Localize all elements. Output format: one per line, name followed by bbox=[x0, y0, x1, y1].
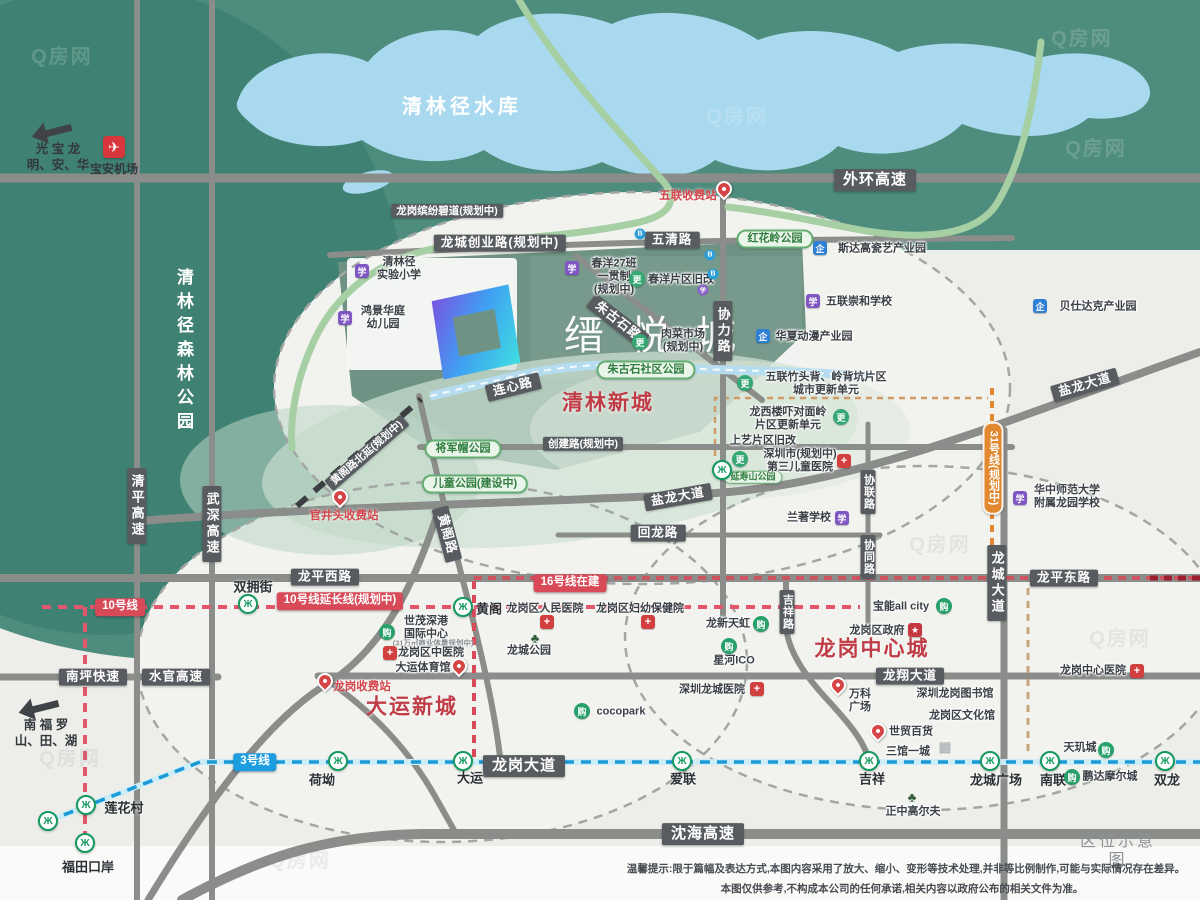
watermark: Q房网 bbox=[39, 748, 101, 772]
road-label-xietong-road: 协同路 bbox=[861, 535, 876, 579]
road-label-huilong-road: 回龙路 bbox=[631, 525, 686, 542]
school-icon-ccnu-longyuan: 学 bbox=[1013, 491, 1027, 505]
hospital-icon-tcm: + bbox=[383, 646, 397, 660]
road-label-longgang-avenue: 龙岗大道 bbox=[483, 755, 565, 777]
area-longgang-central: 龙岗中心城 bbox=[815, 638, 930, 663]
station-dayun: 大运 bbox=[457, 770, 483, 785]
poi-beishidake-industrial-park: 贝仕达克产业园 bbox=[1060, 301, 1137, 314]
metro-icon-longcheng-square: Ж bbox=[980, 751, 1000, 771]
poi-ccnu-longyuan-school: 华中师范大学 附属龙园学校 bbox=[1034, 484, 1100, 510]
station-longcheng-square: 龙城广场 bbox=[970, 772, 1022, 787]
metro-icon-jixiang: Ж bbox=[859, 751, 879, 771]
road-label-shuiguan-expressway: 水官高速 bbox=[142, 669, 210, 686]
metro-icon-huangge: Ж bbox=[453, 597, 473, 617]
poi-longxi-louxia-renewal: 龙西楼吓对面岭 片区更新单元 bbox=[750, 406, 827, 432]
mall-icon-xinghe-ico: 购 bbox=[721, 638, 737, 654]
station-jixiang: 吉祥 bbox=[859, 771, 885, 786]
road-label-qingping-expressway: 清平高速 bbox=[127, 468, 146, 544]
metro-icon-ailian: Ж bbox=[672, 751, 692, 771]
poi-pengda-mall: 鹏达摩尔城 bbox=[1083, 771, 1138, 784]
poi-xinghe-ico: 星河ICO bbox=[713, 655, 755, 668]
disclaimer-line1: 温馨提示:限于篇幅及表达方式,本图内容采用了放大、缩小、变形等技术处理,并非等比… bbox=[627, 863, 1185, 875]
area-dayun-newtown: 大运新城 bbox=[366, 696, 458, 721]
poi-third-children-hospital: 深圳市(规划中) 第三儿童医院 bbox=[763, 448, 836, 474]
mall-icon-shimao-center: 购 bbox=[379, 624, 395, 640]
park-zhugushi-community: 朱古石社区公园 bbox=[597, 361, 696, 380]
poi-dayun-gymnasium: 大运体育馆 bbox=[396, 662, 451, 675]
school-icon-lanzhu: 学 bbox=[835, 511, 849, 525]
poi-wulian-zhutoubei-renewal: 五联竹头背、岭背坑片区 城市更新单元 bbox=[766, 371, 887, 397]
poi-shimao-shengang-center: 世茂深港 国际中心 bbox=[404, 615, 448, 641]
sign-baoan-airport: 宝安机场 bbox=[90, 162, 138, 178]
station-ailian: 爱联 bbox=[670, 771, 696, 786]
tree-icon-longcheng-park: ♣ bbox=[531, 631, 540, 646]
metro-icon-dayun: Ж bbox=[453, 751, 473, 771]
poi-sidagao-ceramic-park: 斯达高瓷艺产业园 bbox=[838, 243, 926, 256]
school-icon-hongjing-kindergarten: 学 bbox=[338, 311, 352, 325]
arrow-icon-northwest bbox=[42, 124, 73, 138]
poi-zhengzhong-golf: 正中高尔夫 bbox=[886, 806, 941, 819]
renew-icon-zhutoubei: 更 bbox=[737, 375, 753, 391]
poi-shenzhen-longcheng-hospital: 深圳龙城医院 bbox=[679, 684, 745, 697]
road-label-yanlong-avenue-west: 盐龙大道 bbox=[643, 483, 713, 511]
park-children: 儿童公园(建设中) bbox=[422, 475, 528, 494]
metro-line10-badge: 10号线 bbox=[95, 598, 145, 616]
metro-line31-badge: 31号线(规划中) bbox=[983, 422, 1004, 515]
airport-icon: ✈ bbox=[103, 136, 125, 158]
location-map: 缙悦城 清林新城大运新城龙岗中心城清林径水库清林径森林公园外环高速五清路龙城创业… bbox=[0, 0, 1200, 900]
school-icon-wulian-chonghe: 学 bbox=[806, 294, 820, 308]
metro-line10-extension-badge: 10号线延长线(规划中) bbox=[277, 592, 403, 610]
metro-icon-heao: Ж bbox=[328, 751, 348, 771]
poi-longgang-government: 龙岗区政府 bbox=[850, 625, 905, 638]
pin-icon-vanke-plaza bbox=[827, 674, 850, 697]
poi-qinglinjing-experimental-primary: 清林径 实验小学 bbox=[377, 256, 421, 282]
industry-icon-sidagao: 企 bbox=[813, 241, 827, 255]
road-label-binfen-greenway: 龙岗缤纷碧道(规划中) bbox=[391, 204, 503, 218]
renew-icon-longxi: 更 bbox=[833, 409, 849, 425]
watermark: Q房网 bbox=[706, 106, 768, 130]
watermark: Q房网 bbox=[269, 850, 331, 874]
arrow-icon-southwest bbox=[29, 700, 60, 714]
road-label-nanping-expressway: 南坪快速 bbox=[59, 669, 127, 686]
renew-icon-meat-market: 更 bbox=[632, 334, 648, 350]
road-label-longping-west-road: 龙平西路 bbox=[291, 569, 359, 586]
watermark: Q房网 bbox=[909, 534, 971, 558]
hospital-icon-central: + bbox=[1130, 664, 1144, 678]
label-qinglinjing-forest-park: 清林径森林公园 bbox=[173, 268, 193, 436]
metro-line16-badge: 16号线在建 bbox=[534, 574, 607, 592]
road-label-jixiang-road: 吉祥路 bbox=[780, 590, 795, 634]
mall-icon-tianjicheng: 购 bbox=[1098, 742, 1114, 758]
metro-icon-lianhuacun: Ж bbox=[76, 795, 96, 815]
poi-longgang-maternity-hospital: 龙岗区妇幼保健院 bbox=[596, 603, 684, 616]
station-lianhuacun: 莲花村 bbox=[104, 800, 143, 815]
dot-icon-blue-2: B bbox=[705, 250, 716, 261]
poi-shangyi-renewal: 上艺片区旧改 bbox=[730, 435, 796, 448]
poi-longgang-peoples-hospital: 龙岗区人民医院 bbox=[507, 603, 584, 616]
poi-baoneng-all-city: 宝能all city bbox=[873, 601, 929, 614]
poi-longxin-tianhong: 龙新天虹 bbox=[706, 618, 750, 631]
station-shuangyongjie: 双拥街 bbox=[233, 579, 272, 594]
gov-icon-longgang-government: ★ bbox=[908, 623, 922, 637]
mall-icon-longxin-tianhong: 购 bbox=[753, 616, 769, 632]
poi-tianjicheng: 天玑城 bbox=[1064, 742, 1097, 755]
road-label-wushen-expressway: 武深高速 bbox=[202, 486, 221, 562]
label-qinglinjing-reservoir: 清林径水库 bbox=[402, 96, 522, 120]
metro-icon-futian-checkpoint: Ж bbox=[75, 833, 95, 853]
road-label-xieli-road: 协力路 bbox=[713, 301, 732, 361]
hospital-icon-peoples: + bbox=[540, 615, 554, 629]
poi-wulian-toll: 五联收费站 bbox=[659, 190, 717, 204]
dot-icon-purple-1: 学 bbox=[698, 285, 709, 296]
watermark: Q房网 bbox=[1089, 628, 1151, 652]
dot-icon-blue-3: B bbox=[708, 269, 719, 280]
poi-longgang-central-hospital: 龙岗中心医院 bbox=[1060, 665, 1126, 678]
hospital-icon-maternity: + bbox=[641, 615, 655, 629]
metro-line3-badge: 3号线 bbox=[233, 753, 276, 771]
metro-icon-yanshoushan: Ж bbox=[712, 460, 732, 480]
road-label-huangge-north-extension: 黄阁路北延(规划中) bbox=[324, 414, 410, 491]
road-label-longcheng-chuangye-road: 龙城创业路(规划中) bbox=[434, 235, 566, 252]
poi-longgang-library: 深圳龙岗图书馆 bbox=[917, 688, 994, 701]
mall-icon-cocopark: 购 bbox=[574, 703, 590, 719]
station-shuanglong: 双龙 bbox=[1154, 772, 1180, 787]
industry-icon-beishidake: 企 bbox=[1033, 299, 1047, 313]
poi-longgang-tcm-hospital: 龙岗区中医院 bbox=[398, 647, 464, 660]
road-label-chuangjian-road: 创建路(规划中) bbox=[543, 437, 623, 451]
area-qinglin-newtown: 清林新城 bbox=[562, 392, 654, 417]
dot-icon-blue-1: B bbox=[635, 229, 646, 240]
poi-longgang-toll: 龙岗收费站 bbox=[333, 681, 391, 695]
station-heao: 荷坳 bbox=[309, 772, 335, 787]
station-nanlian: 南联 bbox=[1040, 772, 1066, 787]
poi-huaxia-anime-park: 华夏动漫产业园 bbox=[776, 331, 853, 344]
road-label-yanlong-avenue-east: 盐龙大道 bbox=[1050, 368, 1120, 403]
road-label-huangge-road: 黄阁路 bbox=[432, 506, 462, 563]
park-jiangjunmao: 将军帽公园 bbox=[425, 440, 502, 459]
station-huangge: 黄阁 bbox=[476, 601, 502, 616]
road-label-longxiang-avenue: 龙翔大道 bbox=[876, 668, 944, 685]
tree-icon-golf: ♣ bbox=[908, 790, 917, 805]
poi-lanzhu-school: 兰著学校 bbox=[787, 512, 831, 525]
road-label-xielian-road: 协联路 bbox=[861, 470, 876, 514]
road-label-wuqing-road: 五清路 bbox=[645, 232, 700, 249]
building-icon-sanguan: ▦ bbox=[938, 739, 951, 756]
road-label-longping-east-road: 龙平东路 bbox=[1030, 570, 1098, 587]
metro-icon-shuangyongjie: Ж bbox=[238, 594, 258, 614]
pin-icon-shimao-store bbox=[867, 720, 890, 743]
poi-longgang-cultural-center: 龙岗区文化馆 bbox=[929, 710, 995, 723]
renew-icon-shangyi: 更 bbox=[732, 451, 748, 467]
station-futian-checkpoint: 福田口岸 bbox=[62, 859, 114, 874]
poi-guanjingtou-toll: 官井头收费站 bbox=[310, 510, 379, 524]
industry-icon-huaxia-anime: 企 bbox=[756, 329, 770, 343]
poi-meat-market: 肉菜市场 (规划中) bbox=[661, 328, 705, 354]
hospital-icon-third-children: + bbox=[837, 454, 851, 468]
renew-icon-chunyang: 更 bbox=[629, 271, 645, 287]
school-icon-chunyang: 学 bbox=[565, 261, 579, 275]
hospital-icon-longcheng: + bbox=[750, 682, 764, 696]
road-label-longcheng-avenue: 龙城大道 bbox=[987, 545, 1006, 621]
road-label-shenhai-expressway: 沈海高速 bbox=[662, 823, 744, 845]
mall-icon-pengda: 购 bbox=[1064, 769, 1080, 785]
disclaimer-line2: 本图仅供参考,不构成本公司的任何承诺,相关内容以政府公布的相关文件为准。 bbox=[721, 883, 1084, 895]
map-labels-layer: 清林新城大运新城龙岗中心城清林径水库清林径森林公园外环高速五清路龙城创业路(规划… bbox=[0, 0, 1200, 900]
watermark: Q房网 bbox=[1065, 138, 1127, 162]
poi-vanke-plaza: 万科 广场 bbox=[849, 688, 871, 714]
mall-icon-baoneng: 购 bbox=[936, 598, 952, 614]
watermark: Q房网 bbox=[31, 46, 93, 70]
road-label-lianxin-road: 连心路 bbox=[485, 372, 542, 401]
school-icon-qinglinjing-primary: 学 bbox=[355, 264, 369, 278]
poi-longcheng-park: 龙城公园 bbox=[507, 645, 551, 658]
poi-shimao-department-store: 世贸百货 bbox=[889, 726, 933, 739]
poi-hongjing-huating-kindergarten: 鸿景华庭 幼儿园 bbox=[361, 305, 405, 331]
road-label-waihuan-expressway: 外环高速 bbox=[834, 169, 916, 191]
watermark: Q房网 bbox=[1051, 28, 1113, 52]
park-honghualing: 红花岭公园 bbox=[737, 230, 814, 249]
metro-icon-nanlian: Ж bbox=[1040, 751, 1060, 771]
metro-icon-line3-terminus: Ж bbox=[38, 811, 58, 831]
poi-sanguan-yicheng: 三馆一城 bbox=[886, 746, 930, 759]
metro-icon-shuanglong: Ж bbox=[1155, 751, 1175, 771]
poi-cocopark: cocopark bbox=[597, 706, 646, 719]
poi-wulian-chonghe-school: 五联崇和学校 bbox=[826, 296, 892, 309]
